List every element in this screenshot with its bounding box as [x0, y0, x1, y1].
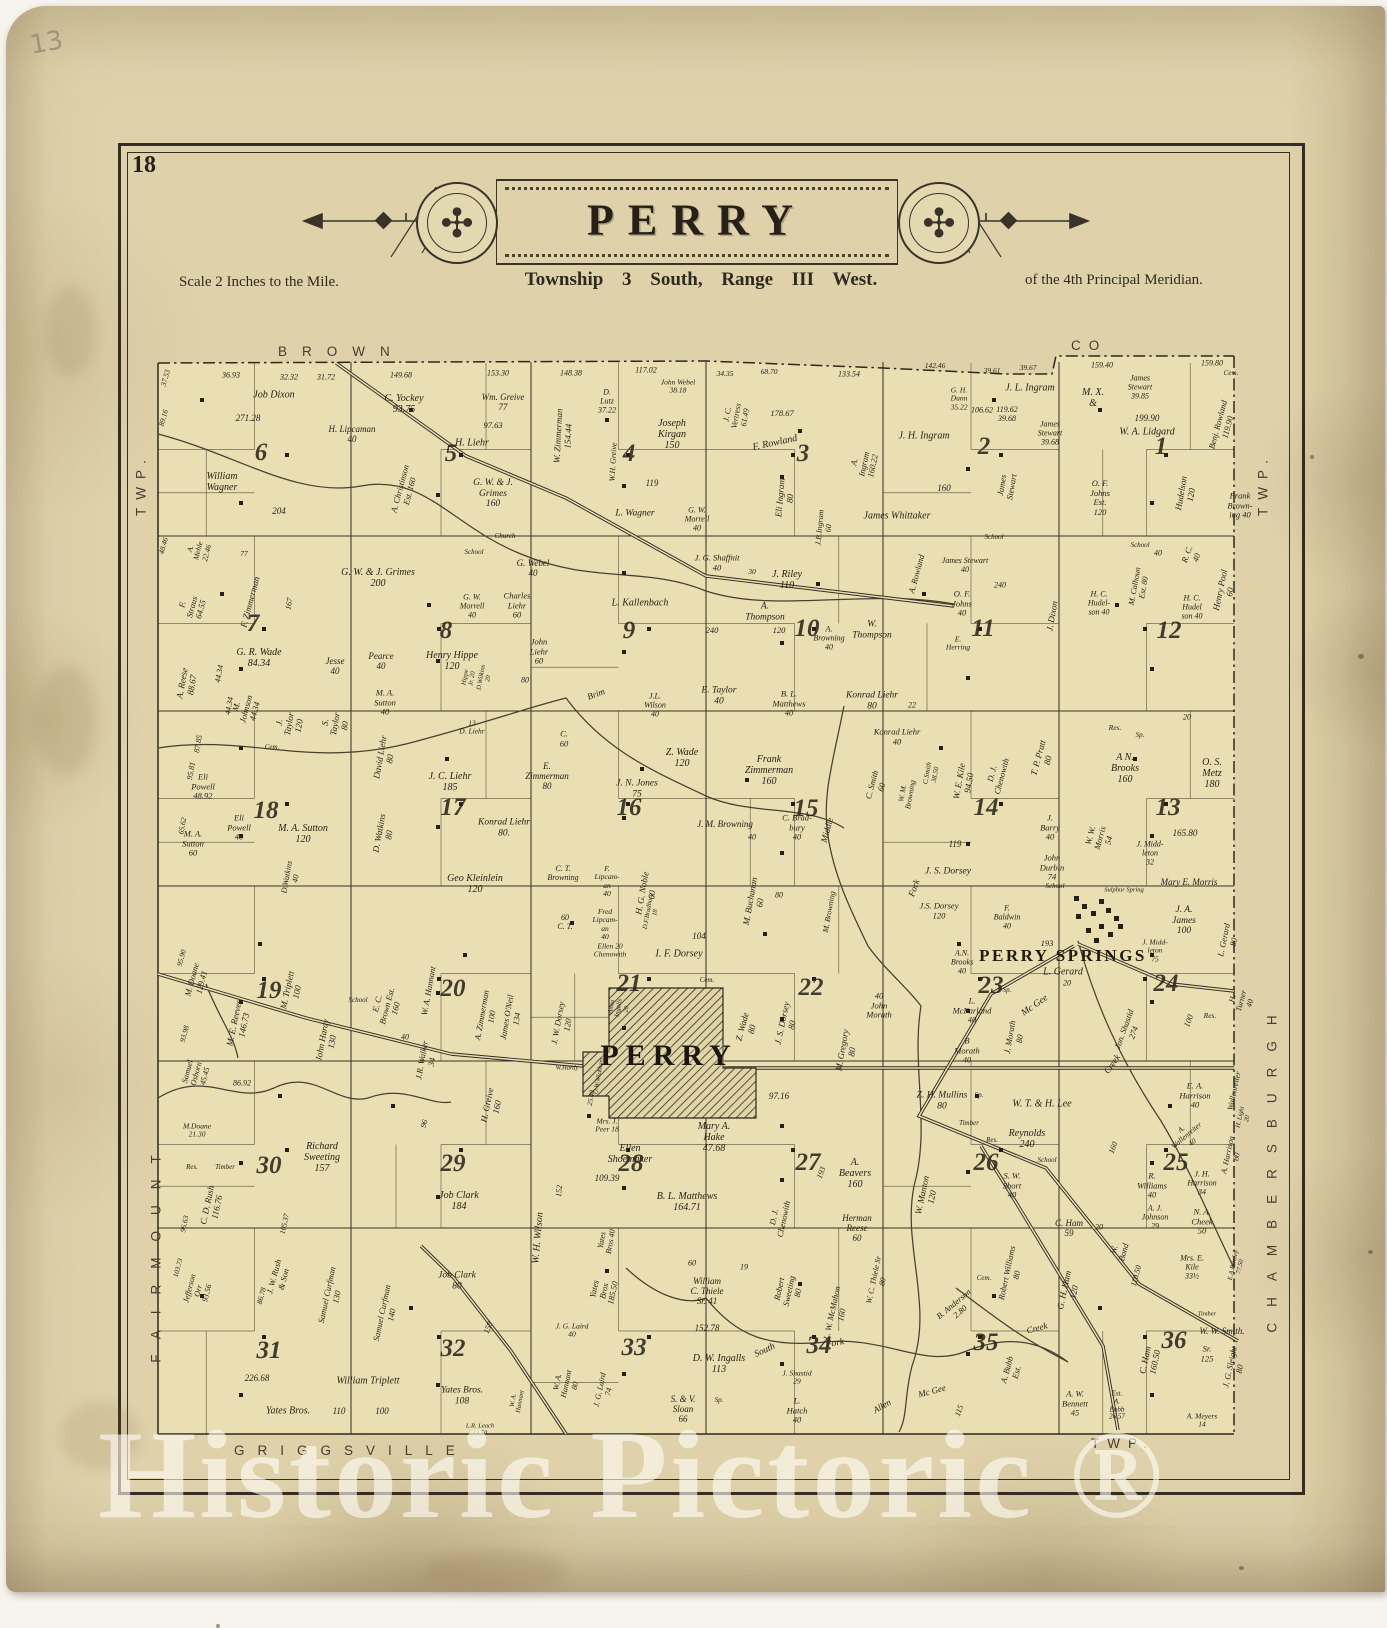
scan-speck [1368, 1250, 1373, 1254]
border-label-chambersburgh: CHAMBERSBURGH [1265, 999, 1280, 1332]
scan-speck [1310, 455, 1314, 459]
border-label-twp-bottom: TWP. [1091, 1436, 1155, 1451]
paper-stain [426, 1551, 566, 1591]
map-fill [158, 356, 1234, 1434]
paper-stain [36, 666, 96, 776]
border-label-brown-county: BROWN [278, 344, 405, 359]
border-label-twp-left: TWP. [134, 452, 149, 516]
town-label-perry-springs: PERRY SPRINGS [979, 946, 1147, 966]
scan-speck [1358, 654, 1364, 659]
paper-stain [61, 1401, 141, 1471]
scan-speck [216, 1624, 220, 1628]
paper-stain [46, 286, 96, 376]
town-label-perry: PERRY [600, 1039, 737, 1073]
border-label-fairmount: FAIRMOUNT [149, 1139, 164, 1363]
scan-speck [1239, 1566, 1244, 1570]
township-map-canvas [6, 6, 1387, 1606]
border-label-twp-right: TWP. [1256, 452, 1271, 516]
border-label-griggsville: GRIGGSVILLE [234, 1443, 468, 1458]
border-label-co: CO [1071, 338, 1107, 353]
scanned-plat-map-page: 13 18 ✣ ✣ PERRY Scale 2 Inches to the Mi… [6, 6, 1385, 1592]
perry-springs-owner-label: L. Gerard [1043, 967, 1083, 978]
